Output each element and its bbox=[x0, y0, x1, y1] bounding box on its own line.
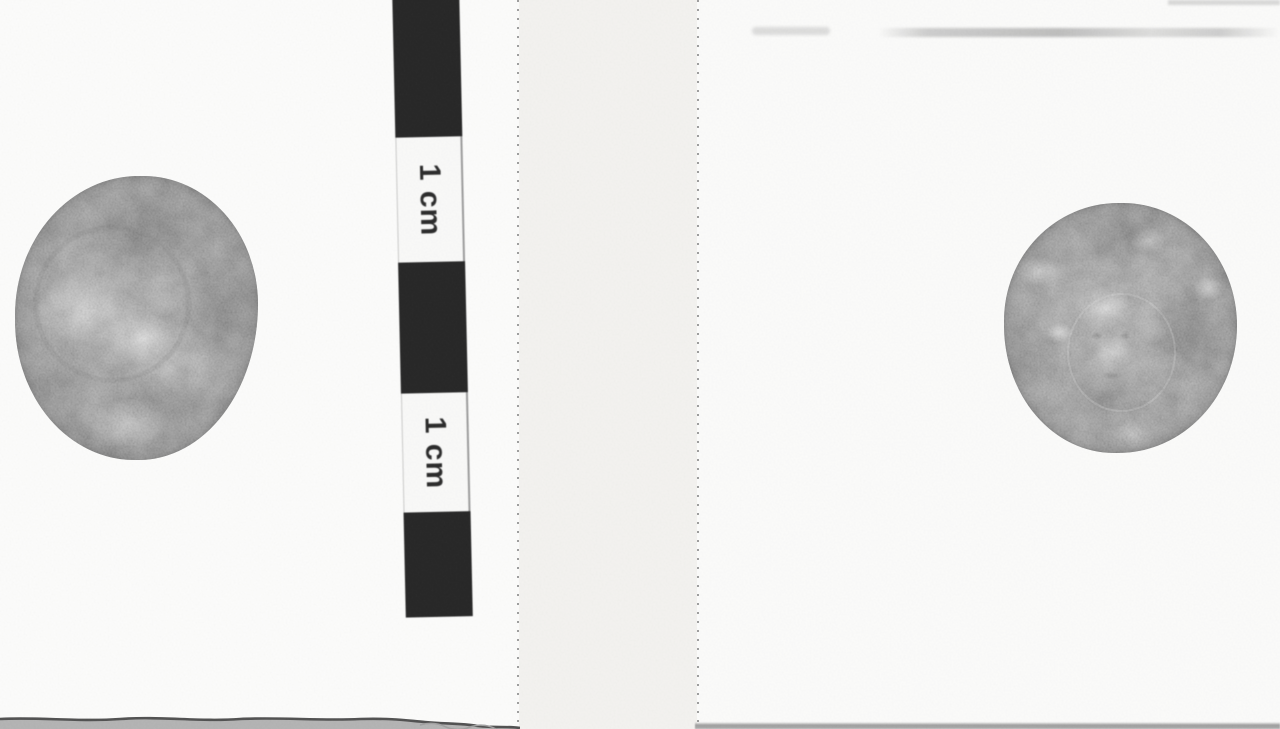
scale-segment-white: 1 cm bbox=[401, 392, 471, 512]
coin-texture bbox=[1004, 203, 1237, 453]
coin-obverse-photo bbox=[15, 176, 258, 460]
perforation-line-left bbox=[517, 0, 519, 729]
coin-reverse-photo bbox=[1004, 203, 1237, 453]
scale-segment-white: 1 cm bbox=[395, 136, 465, 262]
perforated-paper-strip bbox=[519, 0, 697, 729]
scale-label-1cm-bottom: 1 cm bbox=[417, 416, 453, 489]
scale-bar: 1 cm 1 cm bbox=[392, 0, 473, 618]
bottom-edge-shadow bbox=[695, 722, 1280, 729]
scale-segment-black bbox=[404, 511, 473, 617]
scale-segment-black bbox=[398, 261, 468, 393]
scale-label-1cm-top: 1 cm bbox=[412, 163, 448, 236]
coin-texture bbox=[15, 176, 258, 460]
perforation-line-right bbox=[697, 0, 699, 729]
photo-canvas: 1 cm 1 cm bbox=[0, 0, 1280, 729]
scale-segment-black bbox=[392, 0, 462, 138]
torn-paper-edge bbox=[0, 713, 520, 729]
